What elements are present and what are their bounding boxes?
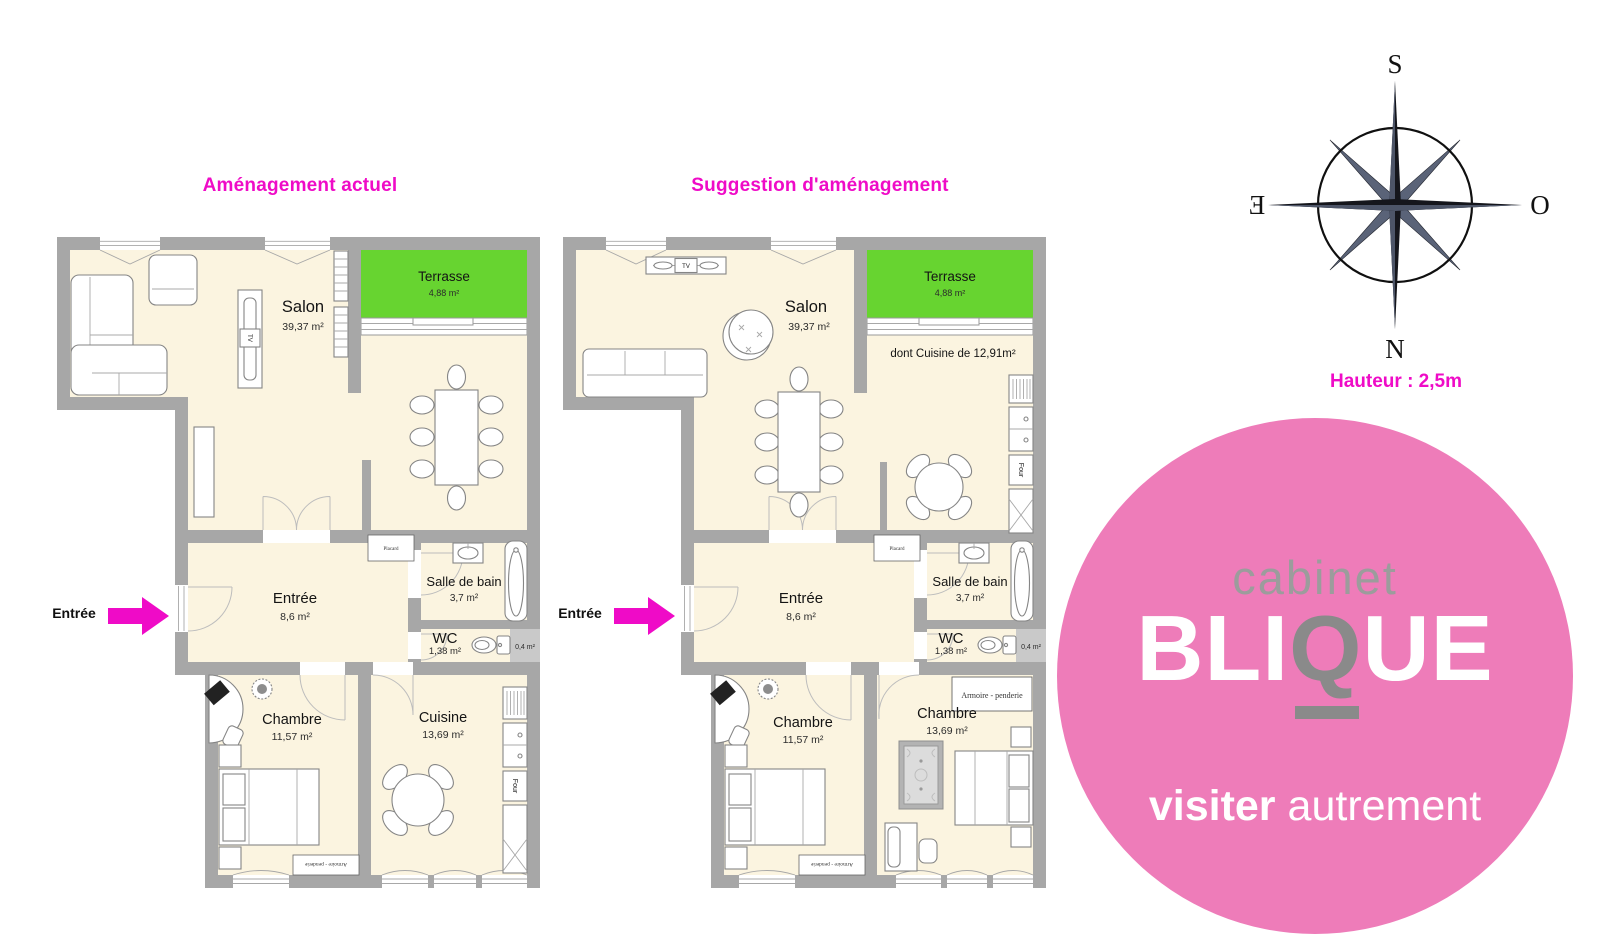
wardrobe-label: Armoire - penderie: [810, 861, 853, 867]
kitchen-label: Cuisine: [419, 710, 467, 726]
logo-brand-text: BLIQUE: [1057, 600, 1573, 698]
toilet: [472, 636, 510, 654]
bedroom2-area: 13,69 m²: [926, 725, 968, 737]
bedroom-label: Chambre: [262, 712, 322, 728]
plan-title-current: Aménagement actuel: [80, 175, 520, 197]
brand-post: UE: [1362, 596, 1493, 700]
bathtub: [505, 541, 527, 621]
terrace-area: 4,88 m²: [935, 288, 966, 298]
agency-logo: cabinet BLIQUE visiterautrement: [1057, 418, 1573, 934]
bathroom-area: 3,7 m²: [956, 593, 985, 604]
entree-area: 8,6 m²: [280, 611, 310, 623]
wardrobe-label: Armoire - penderie: [304, 861, 347, 867]
tagline-bold: visiter: [1149, 782, 1276, 830]
tv-unit: TV: [238, 290, 262, 388]
bathroom-label: Salle de bain: [932, 574, 1007, 589]
terrace-label: Terrasse: [924, 269, 976, 284]
entree-label: Entrée: [779, 590, 823, 607]
bathroom-sink: [959, 543, 989, 563]
entry-label-left: Entrée: [38, 605, 110, 621]
tv-label: TV: [246, 334, 252, 342]
salon-label: Salon: [785, 298, 827, 316]
wc-label: WC: [433, 630, 458, 647]
compass-south: S: [1387, 49, 1402, 79]
plan-title-suggested: Suggestion d'aménagement: [600, 175, 1040, 197]
compass-cardinals: [1268, 81, 1522, 329]
rug: [899, 741, 943, 809]
logo-tagline: visiterautrement: [1057, 782, 1573, 831]
placard-label: Placard: [384, 547, 399, 552]
bedroom-area: 11,57 m²: [272, 731, 313, 743]
entry-label-right: Entrée: [544, 605, 616, 621]
terrace-label: Terrasse: [418, 269, 470, 284]
bedroom2-label: Chambre: [917, 706, 977, 722]
wc-area: 1,38 m²: [935, 646, 967, 657]
kitchen-note: dont Cuisine de 12,91m²: [890, 348, 1015, 360]
bathroom-area: 3,7 m²: [450, 593, 479, 604]
brand-q: Q: [1289, 596, 1362, 700]
sofa: [583, 349, 707, 397]
compass-east: E: [1249, 190, 1266, 220]
toilet: [978, 636, 1016, 654]
closet-area: 0,4 m²: [515, 644, 536, 651]
entree-label: Entrée: [273, 590, 317, 607]
wardrobe: Armoire - penderie: [293, 855, 359, 875]
closet-area: 0,4 m²: [1021, 644, 1042, 651]
salon-area: 39,37 m²: [282, 321, 324, 333]
brand-pre: BLI: [1136, 596, 1289, 700]
compass-north: N: [1385, 334, 1405, 364]
placard-closet: Placard: [874, 535, 920, 561]
salon-area: 39,37 m²: [788, 321, 830, 333]
console-cabinet: [194, 427, 214, 517]
bedroom-area: 11,57 m²: [783, 734, 824, 746]
bathroom-label: Salle de bain: [426, 574, 501, 589]
kitchen-counter: Four: [503, 687, 527, 873]
kitchen-area: 13,69 m²: [422, 729, 464, 741]
armchair: [149, 255, 197, 305]
floor-plan-current: TV Placard: [57, 237, 540, 888]
floor-plan-suggested: TV Four: [563, 237, 1046, 888]
tv-label: TV: [682, 264, 690, 270]
tagline-light: autrement: [1288, 782, 1482, 830]
entree-area: 8,6 m²: [786, 611, 816, 623]
tv-unit: TV: [646, 257, 726, 274]
compass-west: O: [1530, 190, 1550, 220]
wc-area: 1,38 m²: [429, 646, 461, 657]
entry-arrow-right-icon: [614, 596, 676, 636]
wardrobe2-label: Armoire - penderie: [961, 691, 1023, 700]
oven-label: Four: [511, 779, 518, 794]
placard-label: Placard: [890, 547, 905, 552]
floorplan-flyer: { "titles": { "left": "Aménagement actue…: [0, 0, 1600, 952]
placard-closet: Placard: [368, 535, 414, 561]
wardrobe: Armoire - penderie: [799, 855, 865, 875]
bathroom-sink: [453, 543, 483, 563]
logo-underline-bar: [1295, 706, 1359, 719]
entry-arrow-left-icon: [108, 596, 170, 636]
salon-label: Salon: [282, 298, 324, 316]
oven-label: Four: [1017, 463, 1024, 478]
bedroom-label: Chambre: [773, 715, 833, 731]
ceiling-height-note: Hauteur : 2,5m: [1246, 371, 1546, 393]
compass-rose-icon: S N E O: [1243, 45, 1553, 365]
terrace-area: 4,88 m²: [429, 288, 460, 298]
wc-label: WC: [939, 630, 964, 647]
bathtub: [1011, 541, 1033, 621]
